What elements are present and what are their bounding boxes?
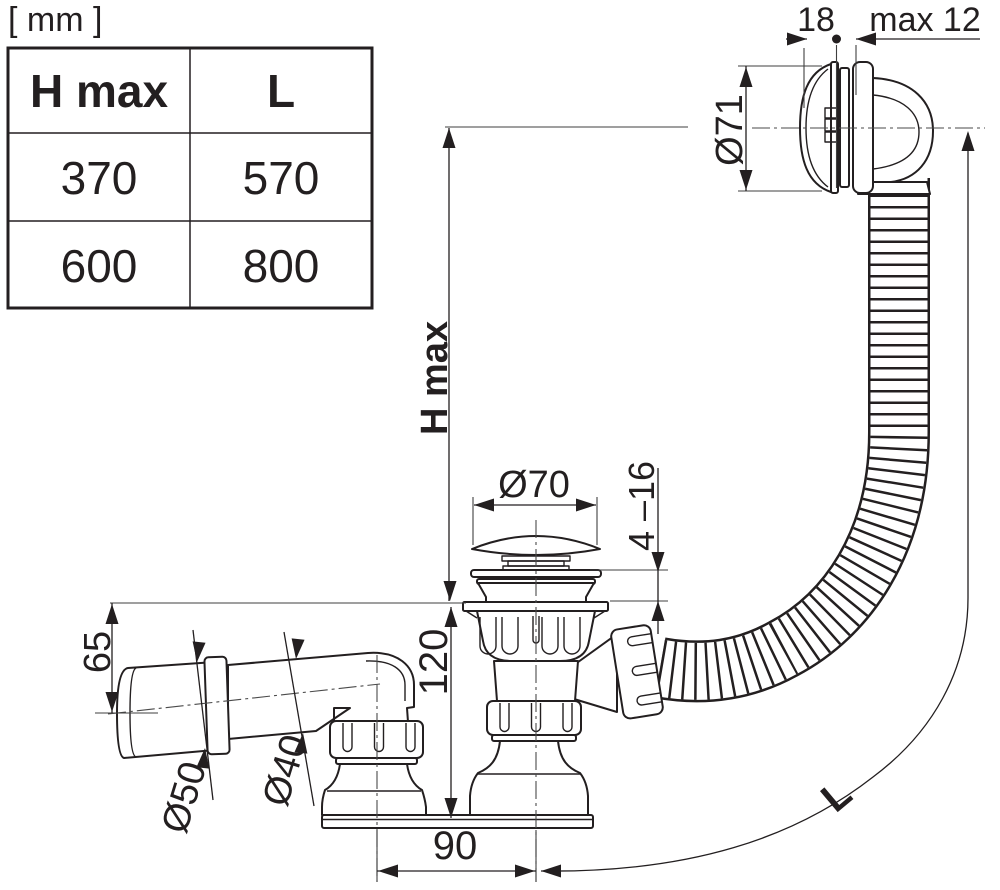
hose-union-nut: [610, 624, 664, 719]
technical-drawing-page: [ mm ] H max L 370 570 600 800: [0, 0, 1000, 890]
outlet-lower-body: [322, 764, 426, 815]
flex-hose: [660, 178, 899, 671]
dim-65-label: 65: [77, 631, 119, 673]
dim-4-16-label: 4 –16: [621, 461, 662, 551]
dim-18-label: 18: [797, 1, 835, 39]
outlet-pipe-collar: [204, 657, 229, 755]
dim-71-label: Ø71: [709, 94, 751, 166]
table-cell: 370: [61, 152, 138, 204]
unit-label: [ mm ]: [8, 1, 102, 39]
table-cell: 800: [243, 240, 320, 292]
dim-90-label: 90: [433, 824, 478, 868]
table-header-l: L: [267, 65, 295, 117]
table-cell: 570: [243, 152, 320, 204]
dim-max12-label: max 12: [869, 1, 981, 39]
trap-lower-body: [470, 741, 588, 815]
dim-120-label: 120: [412, 629, 456, 696]
hmax-label: H max: [414, 321, 456, 435]
hose-length-label: L: [813, 771, 860, 820]
dim-70-label: Ø70: [498, 464, 570, 506]
dim-40-label: Ø40: [255, 730, 316, 811]
dim-50-label: Ø50: [154, 757, 215, 838]
table-header-hmax: H max: [30, 65, 168, 117]
table-cell: 600: [61, 240, 138, 292]
bath-waste-overflow-diagram: [ mm ] H max L 370 570 600 800: [0, 0, 1000, 890]
size-table: [ mm ] H max L 370 570 600 800: [8, 1, 372, 308]
